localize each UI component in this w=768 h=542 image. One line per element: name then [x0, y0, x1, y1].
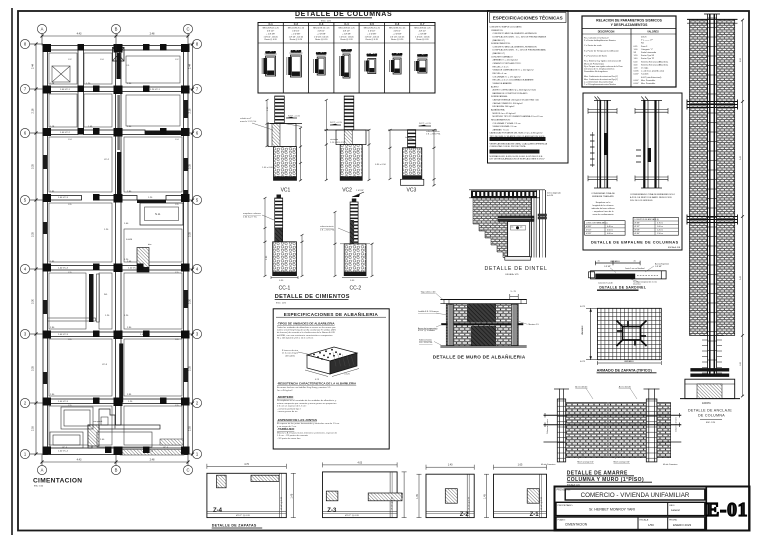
svg-text:N.P.T. +0.15: N.P.T. +0.15 [419, 123, 432, 125]
svg-text:0.007 (atto Estructural): 0.007 (atto Estructural) [641, 76, 662, 79]
svg-text:CUADRO NORMATIVO:: CUADRO NORMATIVO: [491, 151, 514, 154]
svg-text:RECUB = 2.5 cm COLUMNAS DE AM: RECUB = 2.5 cm COLUMNAS DE AMARRE [493, 79, 535, 82]
svg-text:Concreto f´c=140: Concreto f´c=140 [598, 281, 613, 284]
svg-text:VC-4: VC-4 [163, 447, 169, 449]
svg-text:1.50 m: 1.50 m [657, 233, 663, 235]
svg-text:Y DESPLAZAMIENTOS: Y DESPLAZAMIENTOS [611, 23, 649, 27]
svg-text:Factor Tipo S3: Factor Tipo S3 [641, 54, 655, 57]
svg-text:Columna amarre: Columna amarre [676, 416, 678, 432]
svg-text:50% DE LOS GRIFILES.: 50% DE LOS GRIFILES. [630, 200, 653, 202]
svg-text:Ø 1/2" @ 0.20: Ø 1/2" @ 0.20 [392, 496, 394, 510]
svg-text:1.40: 1.40 [448, 464, 453, 467]
svg-text:1.45 VC-3: 1.45 VC-3 [140, 334, 151, 336]
svg-text:DETALLE DE EMPALME DE COLU: DETALLE DE EMPALME DE COLUMNAS [591, 241, 679, 245]
svg-text:+ 2 Ø 3/8": + 2 Ø 3/8" [367, 33, 376, 35]
svg-text:1 Ø 1/4", 1@.05: 1 Ø 1/4", 1@.05 [390, 36, 405, 38]
svg-text:3.30: 3.30 [189, 298, 192, 303]
svg-text:0.25 x 0.25: 0.25 x 0.25 [367, 55, 378, 57]
svg-text:CARGA COMERCIO: 300 kg/m2: CARGA COMERCIO: 300 kg/m2 [493, 102, 524, 105]
svg-text:sobrecimiento: sobrecimiento [320, 225, 334, 228]
svg-text:CONCRETO MEZCLA CEMENTO-HORMI: CONCRETO MEZCLA CEMENTO-HORMIGON [493, 45, 538, 48]
svg-text:EMPALME TRASLAPE: EMPALME TRASLAPE [592, 195, 614, 198]
svg-text:-TARRAJEO: -TARRAJEO [277, 427, 295, 431]
svg-text:LONGITUD DE ANCLAJE (L): LONGITUD DE ANCLAJE (L) [635, 218, 660, 221]
svg-text:1.00 x 0.60: 1.00 x 0.60 [262, 167, 274, 169]
svg-text:Mortero 1:5: Mortero 1:5 [529, 323, 540, 326]
svg-text:Ø 1/2" @ 0.20: Ø 1/2" @ 0.20 [345, 515, 360, 517]
svg-text:Ø 1/4" @ 3 hiladas: Ø 1/4" @ 3 hiladas [418, 330, 435, 332]
svg-text:empalme columna: empalme columna [243, 213, 262, 215]
svg-text:SECCION 25 x 25: SECCION 25 x 25 [389, 28, 406, 30]
svg-text:N.P.T. +0.15: N.P.T. +0.15 [330, 122, 343, 124]
svg-text:1 Ø 1/4", 1@.05: 1 Ø 1/4", 1@.05 [415, 36, 430, 38]
svg-text:4.43: 4.43 [77, 459, 82, 462]
svg-text:ZUCS: ZUCS [641, 37, 647, 39]
svg-text:0.25 x 0.25: 0.25 x 0.25 [392, 54, 403, 56]
svg-text:+ 2 Ø 3/8": + 2 Ø 3/8" [418, 33, 427, 35]
svg-text:P = Parametros del Suelo: P = Parametros del Suelo [584, 55, 608, 58]
svg-text:SOBRECARGAS:: SOBRECARGAS: [491, 95, 508, 98]
svg-text:DE COLUMNA: DE COLUMNA [698, 414, 725, 418]
svg-text:0.60 m: 0.60 m [607, 233, 613, 235]
svg-text:solado e=4": solado e=4" [240, 118, 252, 120]
svg-text:0.25 x 0.25: 0.25 x 0.25 [342, 50, 353, 52]
svg-text:Ø 1/2" @ 0.20: Ø 1/2" @ 0.20 [469, 496, 471, 510]
svg-text:VARIABLE: VARIABLE [581, 325, 584, 335]
svg-text:PROPIETARIO:: PROPIETARIO: [558, 504, 574, 507]
svg-text:1.5 cm: - 2/3 parte: 1.5 cm: - 2/3 partes de cemento [277, 434, 309, 437]
svg-text:ESC: 1/20: ESC: 1/20 [706, 422, 716, 424]
svg-text:(MAXIMO 6"): (MAXIMO 6") [493, 39, 506, 42]
svg-text:A POS. DE RESTO DE BARR. REDU: A POS. DE RESTO DE BARR. REDUCCION [630, 196, 672, 199]
svg-text:h=0.20: h=0.20 [547, 195, 554, 197]
svg-text:VIGAS DE AMARRE: VIGAS DE AMARRE [493, 82, 513, 85]
svg-text:3.35: 3.35 [32, 163, 35, 168]
svg-text:Ø 1/2" @ 0.20: Ø 1/2" @ 0.20 [281, 496, 283, 510]
svg-text:ZAPATAS: f'c = 210 kg/cm2: ZAPATAS: f'c = 210 kg/cm2 [493, 59, 519, 62]
svg-text:COLUMNAS Y VIGAS: 2.5 cm: COLUMNAS Y VIGAS: 2.5 cm [493, 122, 521, 125]
svg-text:Resto @ 0.20: Resto @ 0.20 [366, 38, 379, 41]
svg-text:1 Ø 1/4", 1@.05: 1 Ø 1/4", 1@.05 [314, 36, 329, 38]
svg-text:VC1: VC1 [281, 188, 291, 194]
svg-text:0.007: 0.007 [634, 83, 640, 85]
svg-text:2.64 h=2.7 SC: 2.64 h=2.7 SC [243, 217, 257, 219]
svg-text:Max. Permisible: Max. Permisible [641, 83, 656, 85]
svg-text:2.16: 2.16 [189, 108, 192, 113]
svg-text:Mas. Coeficiente de estructura: Mas. Coeficiente de estructura Rx=(Y) [584, 75, 618, 78]
svg-text:RECUB = 4 cm: RECUB = 4 cm [493, 73, 507, 75]
svg-text:0.25 x 0.25: 0.25 x 0.25 [316, 53, 327, 55]
svg-text:1 Ø 1/4", 1@.05: 1 Ø 1/4", 1@.05 [289, 36, 304, 38]
svg-text:VARIABLE: VARIABLE [610, 260, 620, 263]
svg-text:2.48: 2.48 [150, 33, 155, 36]
svg-text:pta: pta [520, 225, 522, 228]
svg-text:zona de confinamiento: zona de confinamiento [593, 213, 615, 216]
svg-text:ESPECIFICACIONES TÉCNICAS: ESPECIFICACIONES TÉCNICAS [493, 14, 563, 21]
svg-text:del RNE, con una resistenc: del RNE, con una resistencia caracterist… [277, 334, 333, 337]
svg-text:Ladrillo K.K. 18 huecos: Ladrillo K.K. 18 huecos [418, 311, 439, 313]
svg-text:A: A [41, 27, 44, 32]
svg-text:3.35: 3.35 [189, 365, 192, 370]
svg-text:VC-4: VC-4 [148, 451, 154, 453]
svg-text:0.005: 0.005 [634, 71, 640, 73]
svg-text:4.43: 4.43 [77, 33, 82, 36]
svg-text:C = Factor de suelo: C = Factor de suelo [584, 44, 602, 47]
svg-text:V - 25: V - 25 [511, 291, 517, 293]
svg-text:Øs de Conexion: Øs de Conexion [663, 464, 677, 466]
svg-text:Todas las unidades de alba: Todas las unidades de albanileria a usar… [277, 326, 336, 329]
svg-text:Columna amarre: Columna amarre [547, 418, 549, 434]
svg-text:LONG. DE EMPALME (L): LONG. DE EMPALME (L) [586, 221, 608, 224]
svg-text:MORTERO TIPO P2 CEMENTO-ARENA: MORTERO TIPO P2 CEMENTO-ARENA 1:5 e=1.5 … [493, 115, 544, 118]
svg-text:4 Ø 1/2": 4 Ø 1/2" [292, 31, 300, 33]
svg-text:1 Ø 1/4", 1@.05: 1 Ø 1/4", 1@.05 [339, 36, 354, 38]
svg-text:4 Ø 1/2": 4 Ø 1/2" [393, 31, 401, 33]
svg-text:C: C [186, 27, 189, 32]
svg-text:ARMADO DE ZAPATA (TIPICO): ARMADO DE ZAPATA (TIPICO) [597, 369, 653, 373]
svg-text:- cemento portland tipo I: - cemento portland tipo I [277, 407, 301, 410]
svg-text:DOSIFICACION CEM 1 : 8 + 25% D: DOSIFICACION CEM 1 : 8 + 25% DE PIEDRA M… [493, 49, 547, 52]
svg-text:f'm = 45 kg/cm2: f'm = 45 kg/cm2 [277, 390, 293, 392]
svg-text:Rx = Sistema muy rigido o estr: Rx = Sistema muy rigido o estructuras de… [584, 60, 622, 63]
svg-text:DETALLE DE COLUMNAS: DETALLE DE COLUMNAS [295, 11, 392, 18]
svg-text:VARIABLE: VARIABLE [624, 360, 634, 363]
svg-text:1.20 VC-1: 1.20 VC-1 [150, 89, 161, 91]
svg-text:con pend.: con pend. [93, 421, 103, 423]
svg-text:ESCALA: S/E: ESCALA: S/E [668, 246, 681, 249]
svg-text:RELACION DE PARAMETROS SISMICO: RELACION DE PARAMETROS SISMICOS [596, 19, 662, 23]
svg-text:Resto @ 0.20: Resto @ 0.20 [340, 38, 353, 41]
svg-text:1.00 m: 1.00 m [657, 226, 663, 228]
svg-text:3.35: 3.35 [32, 231, 35, 236]
svg-text:CONSIDERAR ZONA DE: CONSIDERAR ZONA DE [591, 192, 615, 195]
svg-text:ZAPATA: ZAPATA [702, 402, 711, 405]
svg-text:3.35: 3.35 [189, 163, 192, 168]
svg-text:Mech anclaje 1/4": Mech anclaje 1/4" [577, 462, 594, 464]
svg-text:Acero detalle: Acero detalle [619, 386, 632, 389]
svg-text:VALORES: VALORES [647, 31, 659, 34]
svg-text:N.P.T. +0.15: N.P.T. +0.15 [288, 116, 301, 118]
svg-text:Ø 1/2" @ 0.20: Ø 1/2" @ 0.20 [541, 496, 543, 510]
svg-text:Z = Factor de Amplificacion Si: Z = Factor de Amplificacion Sismica [584, 39, 617, 42]
svg-text:B: B [115, 27, 118, 32]
svg-text:ESCALA:: ESCALA: [640, 518, 650, 521]
svg-text:+ 2 Ø 3/8": + 2 Ø 3/8" [266, 33, 275, 35]
svg-text:C-7: C-7 [420, 22, 425, 26]
svg-text:Z-1: Z-1 [530, 512, 540, 518]
svg-text:2.44: 2.44 [32, 63, 35, 68]
svg-text:Fza. Cortante en la Base=V: Fza. Cortante en la Base=V [584, 37, 609, 40]
svg-text:1/50: 1/50 [648, 523, 654, 527]
svg-text:COMERCIO - VIVIENDA UNIFAMILIA: COMERCIO - VIVIENDA UNIFAMILIAR [581, 492, 690, 499]
svg-text:4 Ø 1/2": 4 Ø 1/2" [343, 31, 351, 33]
svg-text:SECCION 25 x 25: SECCION 25 x 25 [338, 28, 355, 30]
svg-text:BARRAS DE CONSTRUCCION A615: BARRAS DE CONSTRUCCION A615 [493, 92, 529, 95]
svg-text:x = (di max. piso)/(h. piso): x = (di max. piso)/(h. piso) [641, 71, 664, 73]
svg-text:0.25 x 0.25: 0.25 x 0.25 [291, 51, 302, 53]
svg-text:A: A [41, 468, 44, 473]
svg-text:LEY DE REGULARIZACION DE EDIFI: LEY DE REGULARIZACION DE EDIFICACIONES N… [490, 158, 546, 161]
svg-text:Se empleara en el asentado: Se empleara en el asentado de las unidad… [277, 399, 337, 402]
svg-text:- arena gruesa de rio: - arena gruesa de rio [277, 410, 298, 413]
svg-text:Sr. HERBET MONROY YARI: Sr. HERBET MONROY YARI [589, 508, 635, 512]
svg-text:Empalmar en la: Empalmar en la [596, 201, 611, 204]
svg-text:SECCION 25 x 25: SECCION 25 x 25 [313, 28, 330, 30]
svg-text:1.45: 1.45 [484, 494, 487, 499]
svg-text:Øs de Conexion: Øs de Conexion [541, 464, 555, 466]
svg-text:Lateral: Lateral [671, 508, 680, 512]
svg-text:CIMENTACION: CIMENTACION [565, 523, 588, 527]
svg-text:en la cara mayor: en la cara mayor [282, 352, 299, 355]
svg-text:9 huecos de aire: 9 huecos de aire [282, 349, 299, 352]
svg-text:Viga solera o din: Viga solera o din [421, 292, 436, 294]
svg-text:Suelo Intermedio: Suelo Intermedio [641, 51, 657, 54]
svg-text:ENERO 2023: ENERO 2023 [673, 523, 692, 527]
svg-text:CONCRETO MEZCLA CEMENTO-HORMI: CONCRETO MEZCLA CEMENTO-HORMIGON [493, 32, 538, 35]
svg-text:longitud de la columna: longitud de la columna [593, 204, 615, 207]
svg-text:ZAPATAS: 7.5 cm: ZAPATAS: 7.5 cm [493, 128, 510, 131]
svg-text:Resto @ 0.20: Resto @ 0.20 [391, 38, 404, 41]
svg-text:4 Ø 1/2": 4 Ø 1/2" [419, 31, 427, 33]
svg-text:1 Ø 1/4", 1@.05: 1 Ø 1/4", 1@.05 [365, 36, 380, 38]
svg-text:-ESPESOR DE LAS JUNTAS: -ESPESOR DE LAS JUNTAS [277, 418, 317, 422]
svg-text:4.03: 4.03 [357, 461, 362, 464]
svg-text:+ 2 Ø 3/8": + 2 Ø 3/8" [342, 33, 351, 35]
svg-text:.15: .15 [597, 261, 600, 263]
svg-text:CIMENTACION: CIMENTACION [33, 478, 82, 485]
svg-text:C-6: C-6 [395, 22, 400, 26]
svg-text:Acero detalle: Acero detalle [575, 386, 588, 389]
svg-text:f'b = 145 kg/cm2 y 8.5 x 12.: f'b = 145 kg/cm2 y 8.5 x 12.5 x 23 cm [277, 338, 313, 340]
svg-text:3.35: 3.35 [32, 365, 35, 370]
svg-text:2.48: 2.48 [150, 459, 155, 462]
svg-text:ESCALERA: 200 kg/m2: ESCALERA: 200 kg/m2 [493, 105, 516, 108]
svg-text:4 Ø 1/2": 4 Ø 1/2" [267, 31, 275, 33]
svg-text:1.25 m: 1.25 m [657, 230, 663, 232]
svg-text:0.125: 0.125 [344, 374, 350, 376]
svg-text:1:8 + 25% P.M.: 1:8 + 25% P.M. [426, 133, 441, 135]
svg-text:(MAXIMO 4"): (MAXIMO 4") [493, 52, 506, 55]
svg-text:C-2: C-2 [294, 22, 299, 26]
svg-text:CONCRETO SIMPLE (COLGATE):: CONCRETO SIMPLE (COLGATE): [490, 26, 523, 29]
svg-text:3.30: 3.30 [32, 298, 35, 303]
svg-text:T = Z-Desplazamiento entre Ni: T = Z-Desplazamiento entre Niveles [584, 83, 616, 86]
svg-text:VIGAS SOLERAS: 2.0 cm: VIGAS SOLERAS: 2.0 cm [493, 125, 517, 128]
svg-text:ESPECIFICACIONES DE ALBAÑILERI: ESPECIFICACIONES DE ALBAÑILERIA [284, 311, 379, 317]
svg-text:Ø 3/4": Ø 3/4" [635, 233, 641, 235]
svg-text:esc: esc [511, 226, 514, 228]
svg-text:tantes seran King Kong de: tantes seran King Kong de arcilla cocida… [277, 329, 336, 332]
svg-text:S.H.M: S.H.M [126, 239, 132, 241]
svg-text:E-01: E-01 [706, 499, 748, 521]
svg-text:1.40 VC-3: 1.40 VC-3 [58, 197, 69, 199]
svg-text:1.45: 1.45 [401, 492, 404, 497]
svg-text:CAPACIDAD PORTANTE DEL SUELO:: CAPACIDAD PORTANTE DEL SUELO: Qt = 0.85 … [490, 132, 544, 135]
svg-text:2.55: 2.55 [189, 425, 192, 430]
svg-text:SECCION 25 x 25: SECCION 25 x 25 [288, 28, 305, 30]
svg-text:Ø 1/2": Ø 1/2" [635, 226, 641, 228]
svg-text:Resto @ 0.20: Resto @ 0.20 [315, 38, 328, 41]
svg-text:4 Ø 1/2": 4 Ø 1/2" [368, 31, 376, 33]
svg-text:.15: .15 [633, 261, 636, 263]
svg-text:VC-4: VC-4 [62, 447, 68, 449]
svg-text:0.075: 0.075 [580, 306, 586, 308]
svg-text:del ladrillo: del ladrillo [285, 354, 296, 357]
svg-text:-RESISTENCIA CARACTERISTICA DE: -RESISTENCIA CARACTERISTICA DE LA ALBAÑI… [277, 381, 357, 386]
svg-text:FECHA:: FECHA: [669, 518, 677, 521]
svg-text:en regla: en regla [641, 68, 649, 70]
svg-text:Ø 1/2": Ø 1/2" [586, 230, 592, 232]
svg-text:PLANO:: PLANO: [558, 518, 566, 521]
svg-text:Resto @ 0.20: Resto @ 0.20 [416, 38, 429, 41]
svg-text:C-5: C-5 [370, 22, 375, 26]
svg-text:0.50 m: 0.50 m [607, 230, 613, 232]
svg-text:T=0.005: T=0.005 [641, 74, 649, 76]
svg-text:En muros hechos con ladril: En muros hechos con ladrillos King Kong … [277, 386, 331, 389]
svg-text:CONSIDERANDO ZONA DE EMPALM: CONSIDERANDO ZONA DE EMPALMES SOLO [630, 193, 675, 196]
svg-text:4 Ø 1/2": 4 Ø 1/2" [318, 31, 326, 33]
svg-text:- 1/3 parte de arena fina: - 1/3 parte de arena fina [277, 437, 301, 440]
svg-text:Mas. Coeficiente de estructura: Mas. Coeficiente de estructura Ry=(Y) [584, 78, 618, 81]
svg-text:1.40 VC-3: 1.40 VC-3 [58, 401, 69, 403]
svg-text:-TIPOS DE UNIDADES DE ALBAÑILE: -TIPOS DE UNIDADES DE ALBAÑILERIA [277, 321, 335, 326]
svg-text:+ 2 Ø 3/8": + 2 Ø 3/8" [393, 33, 402, 35]
svg-text:Z-2: Z-2 [460, 512, 470, 518]
svg-text:Ø 3/8": Ø 3/8" [586, 226, 592, 228]
svg-text:CIMIENTOS:: CIMIENTOS: [491, 30, 504, 32]
svg-text:MUROS: fm = 45 kg/cm2: MUROS: fm = 45 kg/cm2 [493, 113, 517, 115]
svg-text:0.25 x 0.25: 0.25 x 0.25 [266, 52, 277, 54]
svg-text:S.H.: S.H. [155, 212, 161, 216]
svg-text:CC-1: CC-1 [279, 286, 291, 292]
svg-text:2.55: 2.55 [32, 425, 35, 430]
svg-text:El espesor de las juntas: El espesor de las juntas horizontales y … [277, 422, 339, 425]
svg-text:1 Ø 3/8": 1 Ø 3/8" [655, 266, 662, 268]
svg-text:SECCION 25 x 25: SECCION 25 x 25 [414, 28, 431, 30]
svg-text:RECUBRIMIENTOS:: RECUBRIMIENTOS: [491, 120, 511, 122]
svg-text:SECCION 25 x 25: SECCION 25 x 25 [262, 28, 279, 30]
svg-text:+ 2 Ø 3/8": + 2 Ø 3/8" [291, 33, 300, 35]
svg-text:1:5 con un espesor de 1.5: 1:5 con un espesor de 1.5 cm: [277, 405, 307, 408]
svg-text:SECCION 25 x 25: SECCION 25 x 25 [364, 28, 381, 30]
svg-text:ACERO:: ACERO: [491, 85, 499, 88]
svg-text:VC-2: VC-2 [104, 159, 110, 161]
svg-text:DETALLE DE ANCLAJE: DETALLE DE ANCLAJE [688, 409, 732, 413]
svg-text:VERIFICAR MEDIDAS EN OBRA, CUA: VERIFICAR MEDIDAS EN OBRA, CUALQUIER DIF… [490, 143, 548, 146]
svg-text:3.35: 3.35 [189, 231, 192, 236]
svg-text:Sistema Estructural Albanileri: Sistema Estructural Albanileria [641, 60, 669, 63]
svg-text:C-4: C-4 [344, 22, 349, 26]
svg-text:UBIC:: UBIC: [669, 505, 675, 507]
svg-text:CEMENTO PORTLAND TIPO I: CEMENTO PORTLAND TIPO I [493, 62, 522, 65]
svg-text:1.65: 1.65 [518, 464, 523, 467]
svg-text:Sistema Estructural Albanileri: Sistema Estructural Albanileria [641, 63, 669, 66]
svg-text:cimiento: cimiento [330, 138, 339, 141]
svg-text:2.44: 2.44 [189, 63, 192, 68]
svg-text:Z-4: Z-4 [213, 508, 223, 514]
svg-text:mezcla 1:12 C:H: mezcla 1:12 C:H [240, 121, 257, 123]
svg-text:estara compuesto por cement: estara compuesto por cemento y arena gru… [277, 402, 337, 405]
svg-text:DOSIFICACION CEM 1 : 10 + 30%: DOSIFICACION CEM 1 : 10 + 30% DE PIEDRA … [493, 36, 547, 39]
svg-text:1.45: 1.45 [290, 493, 293, 498]
svg-text:VIGAS DE CIMENTACION: f'c = 2: VIGAS DE CIMENTACION: f'c = 210 kg/cm2 [493, 69, 535, 72]
svg-text:Mezcla C:A 1:5 para muros: Mezcla C:A 1:5 para muros interiores y e… [277, 432, 338, 435]
svg-text:B: B [115, 468, 118, 473]
svg-text:0.90 x 0.50: 0.90 x 0.50 [375, 164, 387, 166]
svg-text:2.16: 2.16 [32, 108, 35, 113]
svg-text:C: C [186, 468, 189, 473]
svg-text:DETALLE DE ZAPATAS: DETALLE DE ZAPATAS [212, 524, 257, 528]
svg-text:2 Ø 3/8": 2 Ø 3/8" [356, 190, 364, 192]
svg-text:indicada de barra s/disno: indicada de barra s/disno [591, 207, 615, 210]
svg-text:ESC: 1/25: ESC: 1/25 [276, 303, 287, 305]
svg-text:ACERO CORRUGADO fy = 4200 kg/: ACERO CORRUGADO fy = 4200 kg/cm2 G-60 [493, 89, 537, 92]
svg-text:CC-2: CC-2 [350, 286, 362, 292]
svg-text:DETALLE DE MURO DE ALBAÑILERI: DETALLE DE MURO DE ALBAÑILERIA [433, 354, 526, 360]
svg-text:Categoria "C": Categoria "C" [641, 48, 653, 51]
svg-text:Resto @ 0.20: Resto @ 0.20 [290, 38, 303, 41]
svg-text:+ 2 Ø 3/8": + 2 Ø 3/8" [317, 33, 326, 35]
svg-text:S = Factor de Tiempo por la ed: S = Factor de Tiempo por la edificacion [584, 49, 619, 52]
svg-text:- empalmar fuera de la: - empalmar fuera de la [593, 210, 615, 213]
svg-text:0.007: 0.007 [634, 74, 640, 76]
svg-text:Ø 5/8": Ø 5/8" [586, 233, 592, 235]
svg-text:C-3: C-3 [319, 22, 324, 26]
svg-text:ESC: 1/50: ESC: 1/50 [34, 486, 44, 488]
svg-text:1:8 + 25% P.M.: 1:8 + 25% P.M. [320, 230, 335, 232]
svg-text:Junta 1 cm en Sardinel: Junta 1 cm en Sardinel [625, 267, 645, 270]
svg-text:Rd: Rd [641, 43, 644, 45]
svg-text:-MORTERO: -MORTERO [277, 395, 294, 399]
svg-text:0.75 m: 0.75 m [657, 223, 663, 225]
svg-text:0.075: 0.075 [580, 361, 586, 363]
svg-text:CONSULTAR CON EL PROYECTISTA: CONSULTAR CON EL PROYECTISTA [490, 145, 526, 148]
svg-text:Factor Tipo TP: Factor Tipo TP [641, 57, 655, 60]
svg-text:1.40 VC-1: 1.40 VC-1 [60, 89, 71, 91]
svg-text:1.40 VC-3: 1.40 VC-3 [58, 334, 69, 336]
svg-text:Resto @ 0.20: Resto @ 0.20 [264, 38, 277, 41]
svg-text:0.40 m: 0.40 m [607, 226, 613, 228]
svg-text:1.20 VC-3: 1.20 VC-3 [128, 268, 139, 270]
svg-text:Z-3: Z-3 [327, 508, 337, 514]
svg-text:1.40 VC-3: 1.40 VC-3 [58, 268, 69, 270]
svg-text:de huecos) de acuerdo a l: de huecos) de acuerdo a la clasificacion… [277, 331, 336, 334]
svg-text:1 Ø 1/4", 1@.05: 1 Ø 1/4", 1@.05 [263, 36, 278, 38]
svg-text:DETALLE DE DINTEL: DETALLE DE DINTEL [485, 266, 548, 272]
svg-text:1.45: 1.45 [416, 494, 419, 499]
svg-text:0.25 x 0.25: 0.25 x 0.25 [417, 55, 428, 57]
svg-text:NORMAS E-020, E-030, E-050, E-: NORMAS E-020, E-030, E-050, E-060, E-070… [490, 155, 544, 158]
svg-text:VC2: VC2 [342, 188, 352, 194]
svg-text:Ø 5/8": Ø 5/8" [635, 230, 641, 232]
svg-text:1:8 + 25% P.M.: 1:8 + 25% P.M. [419, 342, 433, 344]
svg-text:C-1: C-1 [269, 22, 274, 26]
svg-text:VC3: VC3 [407, 188, 417, 194]
svg-text:1.40 VC-4: 1.40 VC-4 [58, 451, 69, 453]
svg-text:1:10 +30% P.G.: 1:10 +30% P.G. [330, 142, 346, 144]
svg-text:DETALLE DE SARDINEL: DETALLE DE SARDINEL [599, 286, 646, 290]
svg-text:ALBAÑILERIA:: ALBAÑILERIA: [491, 109, 505, 112]
svg-text:RECUB = 7.5 cm: RECUB = 7.5 cm [493, 66, 509, 68]
svg-text:V = ------- x P: V = ------- x P [641, 40, 653, 42]
svg-text:Zona 3: Zona 3 [641, 46, 648, 48]
svg-text:CONCRETO ARMADO:: CONCRETO ARMADO: [491, 55, 513, 58]
svg-text:0.007: 0.007 [634, 80, 640, 82]
svg-text:NOTA IMPORTANTE:: NOTA IMPORTANTE: [491, 138, 512, 141]
svg-text:4.70: 4.70 [244, 463, 249, 466]
svg-text:ESCALA: 1/25: ESCALA: 1/25 [506, 273, 520, 276]
svg-text:Muros de Portantes(x): Muros de Portantes(x) [584, 62, 604, 65]
